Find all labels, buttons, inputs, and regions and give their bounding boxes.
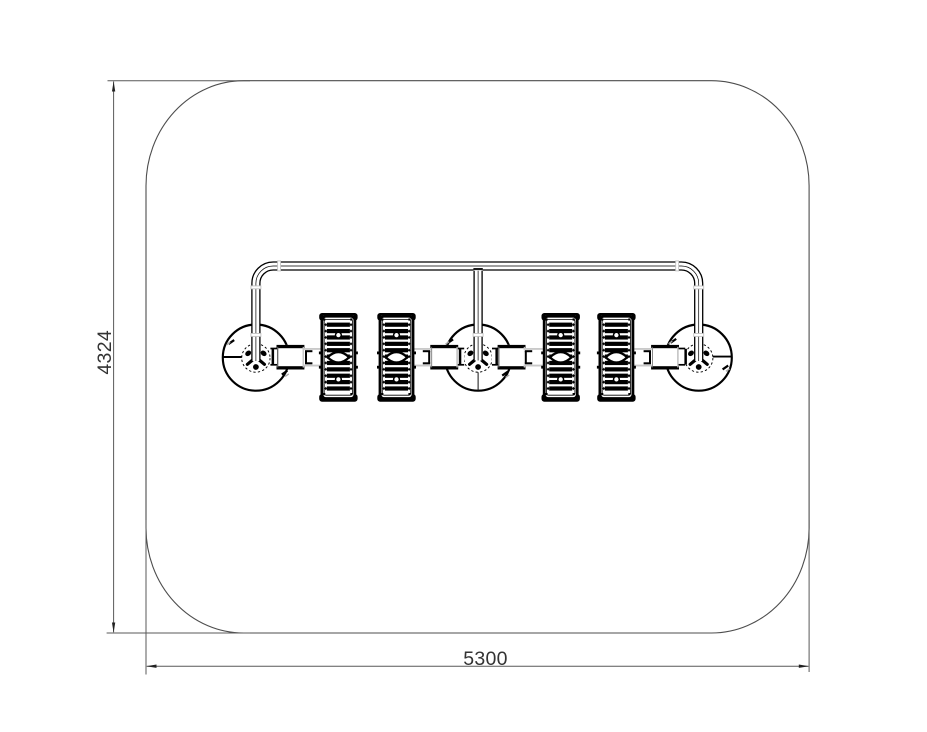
svg-text:5300: 5300: [463, 648, 508, 670]
svg-text:4324: 4324: [94, 330, 116, 375]
